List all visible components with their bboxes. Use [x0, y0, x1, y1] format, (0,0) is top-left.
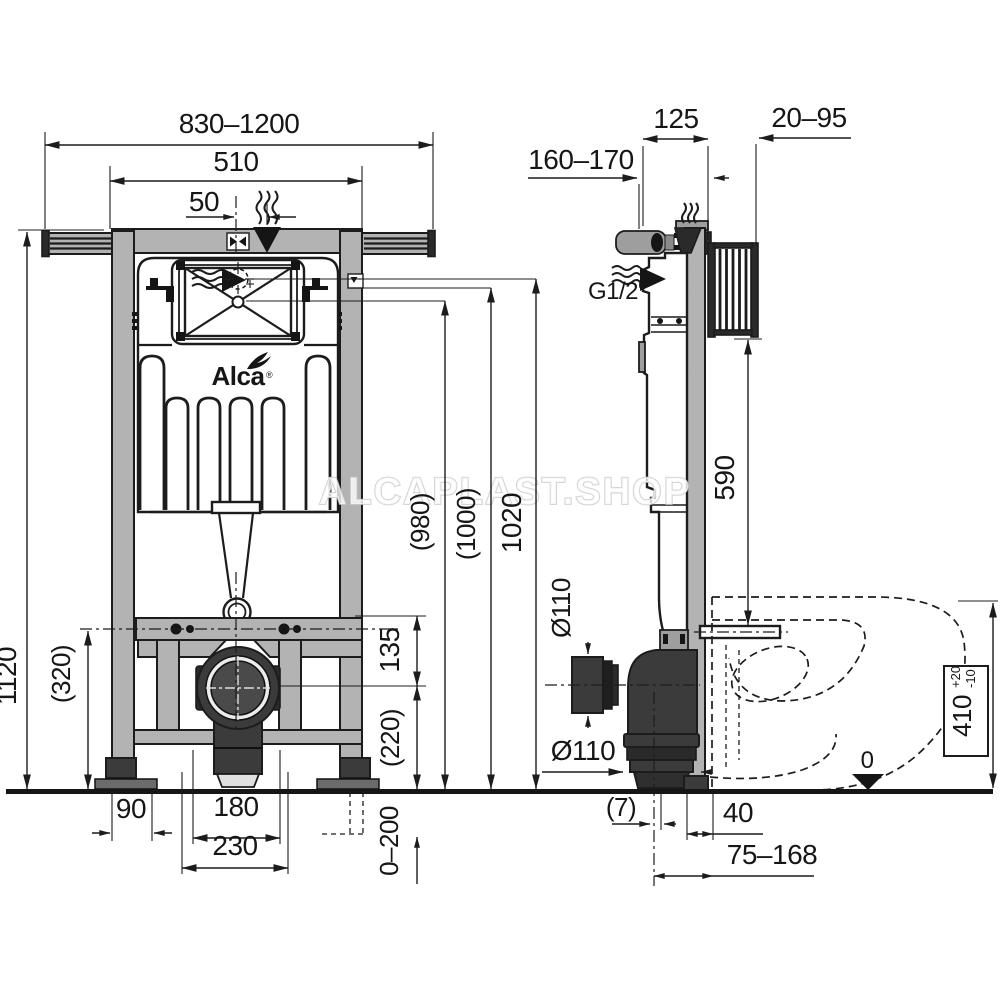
installation-diagram-svg: Alca ® [0, 0, 1000, 1000]
dim-height-1000: (1000) [451, 488, 481, 560]
dim-bowl-height: 410 [947, 695, 977, 737]
right-rail-endcap [428, 231, 435, 257]
dim-frame-width: 510 [213, 146, 258, 177]
right-bracket [254, 640, 362, 657]
side-view-frame [545, 203, 965, 886]
dim-outlet-distance-40: 40 [723, 797, 753, 828]
left-strut [157, 640, 179, 732]
dim-sleeve-diameter: Ø110 [546, 578, 576, 638]
left-post [112, 231, 134, 758]
dim-outlet-diameter: Ø110 [551, 735, 615, 766]
dim-lower-rail-height: (320) [46, 645, 76, 703]
floor-line [6, 789, 993, 794]
drain-assembly [196, 647, 280, 787]
label-water-inlet: G1/2" [588, 278, 646, 305]
dim-drain-span-180: 180 [213, 791, 258, 822]
dim-drain-height: (220) [375, 709, 405, 767]
wall-bracket [708, 243, 758, 337]
dim-outlet-range: 75–168 [727, 839, 817, 870]
flush-housing [616, 231, 680, 254]
right-foot [340, 758, 370, 778]
left-foot [106, 758, 136, 778]
dim-flush-offset: 50 [189, 186, 219, 217]
right-base-plate [317, 779, 379, 789]
dim-foot-width: 90 [116, 793, 146, 824]
tank-profile [643, 253, 687, 660]
left-base-plate [95, 779, 157, 789]
label-datum-zero: 0 [861, 747, 874, 774]
dim-drain-to-rail: 135 [374, 627, 405, 672]
dim-bowl-height-tol-plus: +20 [948, 666, 963, 688]
level-marker-icon [348, 274, 363, 288]
dim-height-1020: 1020 [496, 493, 527, 553]
datum-zero-icon [852, 774, 884, 790]
dim-offset-7: (7) [606, 792, 636, 822]
side-foot [684, 776, 708, 790]
registered-mark: ® [266, 370, 273, 380]
left-rail-endcap [42, 231, 49, 257]
dim-frame-height: 1120 [0, 647, 22, 705]
dim-bowl-height-tol-minus: -10 [963, 669, 978, 688]
valve-icon [227, 233, 249, 250]
dim-drain-span-230: 230 [212, 830, 257, 861]
dim-leg-extension: 0–200 [374, 806, 404, 876]
dim-height-980: (980) [405, 493, 435, 551]
water-flow-icon [682, 203, 698, 223]
dim-frame-depth: 125 [653, 103, 698, 134]
drain-elbow [624, 630, 699, 788]
dim-flush-pipe-height: 590 [709, 455, 740, 500]
technical-drawing: Alca ® [0, 0, 1000, 1000]
dim-wall-distance: 160–170 [528, 144, 634, 175]
dim-overall-width: 830–1200 [179, 108, 300, 139]
dim-bracket-range: 20–95 [771, 102, 846, 133]
